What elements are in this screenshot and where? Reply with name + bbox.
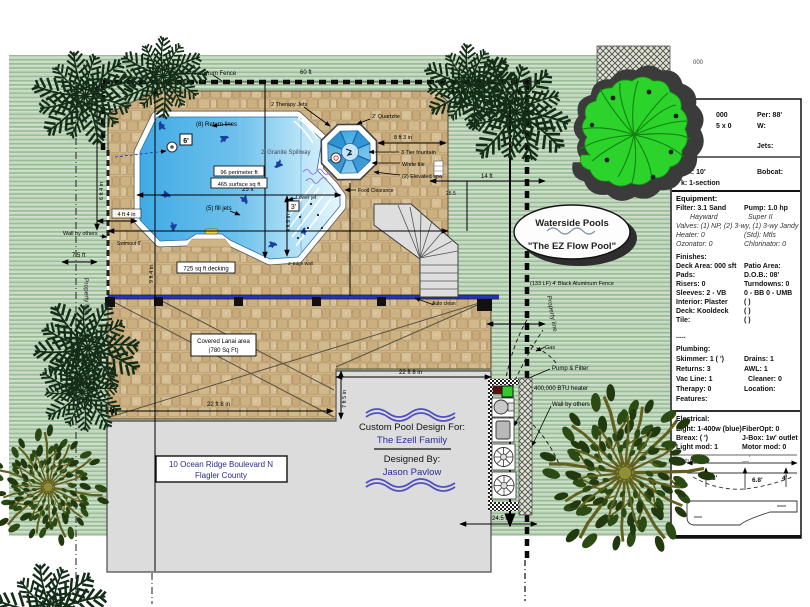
svg-text:22 ft 8 in: 22 ft 8 in [207,402,230,408]
svg-text:Ozonator: 0: Ozonator: 0 [676,241,713,248]
svg-text:( ): ( ) [744,317,751,324]
svg-text:Waterside Pools: Waterside Pools [535,218,609,229]
svg-text:( ): ( ) [744,299,751,306]
svg-text:Deck: Kooldeck: Deck: Kooldeck [676,308,729,315]
svg-text:4 ft 4 in: 4 ft 4 in [117,212,135,218]
svg-text:W:: W: [757,123,766,130]
svg-text:Jason Pavlow: Jason Pavlow [383,467,442,478]
svg-text:2' Granite Spillway: 2' Granite Spillway [261,150,311,156]
svg-text:7 ft 5 in: 7 ft 5 in [342,390,348,408]
svg-text:Lower jet: Lower jet [296,195,317,201]
svg-text:Covered Lanai area: Covered Lanai area [197,339,250,345]
svg-text:6': 6' [183,138,189,145]
svg-text:0 - BB 0 - UMB: 0 - BB 0 - UMB [744,290,792,297]
svg-text:Features:: Features: [676,396,708,403]
svg-text:D.O.B.: 08': D.O.B.: 08' [744,272,779,279]
svg-text:14 ft: 14 ft [481,174,493,180]
svg-text:Pump & Filter: Pump & Filter [552,366,588,372]
svg-text:.....: ..... [676,333,686,340]
svg-text:60 ft: 60 ft [300,70,312,76]
svg-text:Jets:: Jets: [757,143,773,150]
svg-text:6 ft 4 in: 6 ft 4 in [99,182,105,200]
svg-text:Drains: 1: Drains: 1 [744,356,774,363]
svg-text:4 ft 9 in: 4 ft 9 in [286,214,292,232]
svg-text:Valves: (1) NP, (2) 3-wy, (1): Valves: (1) NP, (2) 3-wy, (1) 3-wy Jandy [676,223,799,230]
svg-text:2' Edge Wall: 2' Edge Wall [288,261,313,266]
svg-text:Finishes:: Finishes: [676,254,707,261]
svg-text:( ): ( ) [744,308,751,315]
svg-text:000: 000 [716,112,728,119]
svg-text:7.5 ft: 7.5 ft [72,253,86,259]
svg-text:Light mod: 1: Light mod: 1 [676,444,718,451]
svg-text:Interior: Plaster: Interior: Plaster [676,299,728,306]
svg-text:Risers: 0: Risers: 0 [676,281,706,288]
svg-text:10 Ocean Ridge Boulevard N: 10 Ocean Ridge Boulevard N [169,460,273,469]
svg-text:Equipment:: Equipment: [676,194,717,203]
svg-text:Food Clearance: Food Clearance [358,188,394,194]
svg-text:Auto clean: Auto clean [432,301,456,307]
svg-text:Cleaner: 0: Cleaner: 0 [748,376,782,383]
svg-text:24.5 ft: 24.5 ft [492,516,509,522]
svg-text:k: 1-section: k: 1-section [681,180,720,187]
svg-text:3': 3' [291,204,296,211]
svg-text:(5) fill jets: (5) fill jets [206,206,232,212]
svg-text:Hayward: Hayward [690,214,719,221]
svg-text:Location:: Location: [744,386,776,393]
svg-text:25.5: 25.5 [446,191,456,197]
svg-text:Therapy: 0: Therapy: 0 [676,386,712,393]
svg-text:"The EZ Flow Pool": "The EZ Flow Pool" [528,241,616,252]
svg-text:Flagler County: Flagler County [195,471,247,480]
svg-text:Deck Area: 000 sft: Deck Area: 000 sft [676,263,737,270]
svg-text:3 Tier fountain: 3 Tier fountain [401,150,436,156]
svg-text:(8) Return lines: (8) Return lines [196,122,237,128]
svg-text:Vac Line: 1: Vac Line: 1 [676,376,713,383]
svg-text:Returns: 3: Returns: 3 [676,366,711,373]
svg-text:Sleeves: 2 - VB: Sleeves: 2 - VB [676,290,726,297]
svg-text:Filter: 3.1 Sand: Filter: 3.1 Sand [676,205,726,212]
svg-text:Patio Area:: Patio Area: [744,263,781,270]
svg-text:5 x 0: 5 x 0 [716,123,732,130]
svg-text:400,000 BTU heater: 400,000 BTU heater [534,386,588,392]
svg-text:Tile:: Tile: [676,317,690,324]
svg-text:(Std): Mtls: (Std): Mtls [744,232,776,239]
svg-text:Gas: Gas [545,345,555,351]
svg-text:Plumbing:: Plumbing: [676,346,710,353]
svg-text:White tile: White tile [402,162,425,168]
svg-text:Wall by others: Wall by others [63,231,98,237]
svg-text:2 Therapy Jets: 2 Therapy Jets [271,102,308,108]
svg-text:465 surface sq ft: 465 surface sq ft [218,182,261,188]
svg-text:Chlorinator: 0: Chlorinator: 0 [744,241,786,248]
svg-text:Wall by others: Wall by others [552,402,590,408]
svg-text:The Ezell Family: The Ezell Family [377,435,447,446]
svg-text:(2) Elevated spa: (2) Elevated spa [402,174,443,180]
svg-text:Pads:: Pads: [676,272,695,279]
svg-text:AWL: 1: AWL: 1 [744,366,768,373]
svg-text:725 sq ft decking: 725 sq ft decking [183,267,228,273]
svg-text:4': 4' [782,475,788,482]
svg-text:Designed By:: Designed By: [384,454,441,465]
svg-text:8 ft 3 in: 8 ft 3 in [394,135,412,141]
svg-text:Swimout 6': Swimout 6' [117,241,141,247]
svg-text:000: 000 [693,60,704,66]
svg-text:22 ft 8 in: 22 ft 8 in [399,370,422,376]
svg-text:FiberOpt: 0: FiberOpt: 0 [742,426,779,433]
svg-text:Super II: Super II [748,214,773,221]
svg-text:Heater: 0: Heater: 0 [676,232,705,239]
svg-text:9 ft 4 in: 9 ft 4 in [149,265,155,283]
svg-text:Turndowns: 0: Turndowns: 0 [744,281,789,288]
svg-text:Breax: ( '): Breax: ( ') [676,435,708,442]
svg-text:Motor mod: 0: Motor mod: 0 [742,444,786,451]
svg-text:Custom Pool Design For:: Custom Pool Design For: [359,422,465,433]
svg-text:Bobcat:: Bobcat: [757,169,783,176]
svg-text:(780 Sq Ft): (780 Sq Ft) [208,348,238,354]
svg-text:(133 LF) 4' Black Aluminum Fen: (133 LF) 4' Black Aluminum Fence [530,281,614,287]
svg-text:__': __' [741,456,750,462]
svg-text:6.8': 6.8' [752,477,763,484]
svg-text:Per: 88': Per: 88' [757,112,782,119]
svg-text:J-Box: 1w' outlet: J-Box: 1w' outlet [742,435,798,442]
svg-text:Pump: 1.0 hp: Pump: 1.0 hp [744,205,788,212]
svg-text:2' Quartzite: 2' Quartzite [372,114,400,120]
svg-text:Skimmer: 1 ( '): Skimmer: 1 ( ') [676,356,724,363]
svg-text:96 perimeter ft: 96 perimeter ft [220,170,258,176]
